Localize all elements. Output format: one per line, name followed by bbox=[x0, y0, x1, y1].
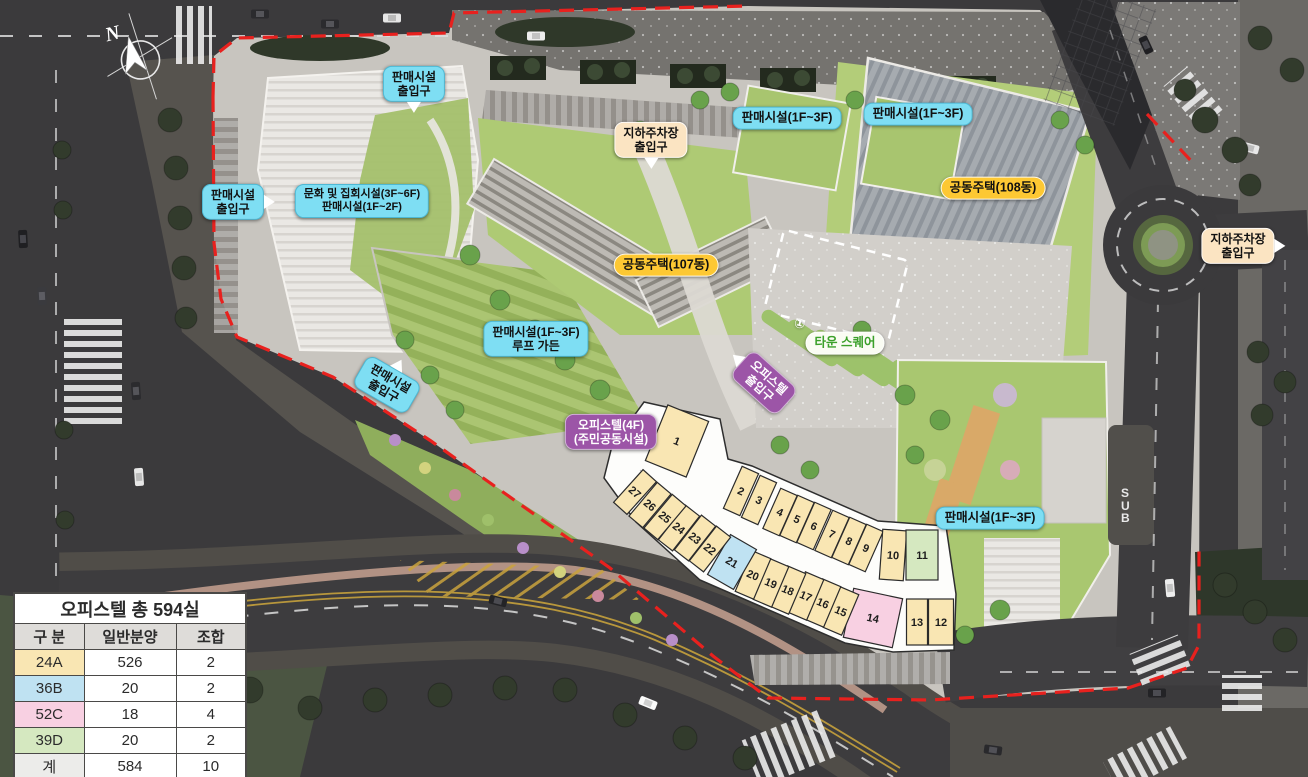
legend-table: 오피스텔 총 594실 구 분일반분양조합 24A526236B20252C18… bbox=[13, 592, 247, 777]
legend-row-24A: 24A5262 bbox=[14, 650, 246, 676]
legend-header: 일반분양 bbox=[84, 624, 176, 650]
officetel-unit-11: 11 bbox=[906, 530, 938, 580]
legend-cell-assoc: 4 bbox=[176, 702, 246, 728]
roundabout bbox=[1103, 185, 1223, 305]
site-plan: 1234567891011121314151617181920212223242… bbox=[0, 0, 1308, 777]
unit-number: 10 bbox=[886, 550, 899, 563]
legend-row-계: 계58410 bbox=[14, 754, 246, 777]
bus-lane-label: S U B bbox=[1121, 487, 1130, 525]
legend-row-52C: 52C184 bbox=[14, 702, 246, 728]
officetel-unit-10: 10 bbox=[879, 529, 906, 581]
legend-header: 조합 bbox=[176, 624, 246, 650]
legend-cell-general: 20 bbox=[84, 728, 176, 754]
unit-number: 11 bbox=[916, 550, 928, 562]
legend-cell-general: 18 bbox=[84, 702, 176, 728]
legend-cell-label: 52C bbox=[14, 702, 84, 728]
legend-cell-label: 계 bbox=[14, 754, 84, 777]
officetel-unit-13: 13 bbox=[907, 599, 928, 645]
legend-header: 구 분 bbox=[14, 624, 84, 650]
legend-cell-label: 24A bbox=[14, 650, 84, 676]
legend-cell-general: 526 bbox=[84, 650, 176, 676]
legend-cell-label: 39D bbox=[14, 728, 84, 754]
legend-row-39D: 39D202 bbox=[14, 728, 246, 754]
legend-cell-general: 20 bbox=[84, 676, 176, 702]
legend-cell-assoc: 2 bbox=[176, 650, 246, 676]
unit-number: 13 bbox=[911, 617, 923, 629]
legend-cell-general: 584 bbox=[84, 754, 176, 777]
legend-cell-label: 36B bbox=[14, 676, 84, 702]
legend-title: 오피스텔 총 594실 bbox=[14, 593, 246, 624]
unit-number: 12 bbox=[935, 617, 947, 629]
legend-cell-assoc: 2 bbox=[176, 728, 246, 754]
legend-cell-assoc: 10 bbox=[176, 754, 246, 777]
legend-row-36B: 36B202 bbox=[14, 676, 246, 702]
legend-cell-assoc: 2 bbox=[176, 676, 246, 702]
officetel-unit-12: 12 bbox=[929, 599, 954, 645]
